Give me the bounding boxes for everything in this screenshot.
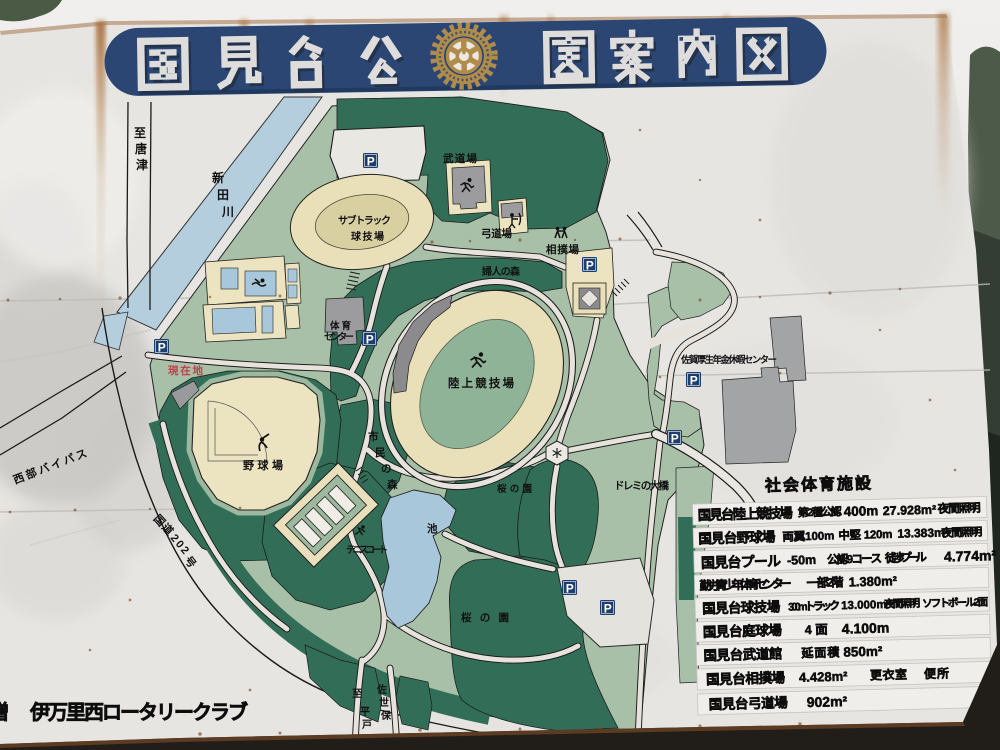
svg-text:公認9コース: 公認9コース — [827, 551, 882, 566]
svg-text:P: P — [671, 431, 679, 445]
svg-text:P: P — [690, 373, 698, 387]
svg-text:婦人の森: 婦人の森 — [481, 265, 521, 278]
svg-text:唐: 唐 — [135, 141, 147, 156]
svg-text:の: の — [381, 463, 392, 475]
svg-text:新: 新 — [212, 170, 224, 185]
svg-text:勤労青少年体育センター: 勤労青少年体育センター — [699, 576, 791, 593]
svg-text:4.428m²: 4.428m² — [799, 669, 848, 685]
svg-text:P: P — [586, 258, 594, 272]
svg-text:戸: 戸 — [362, 719, 372, 731]
svg-text:野球場: 野球場 — [243, 458, 283, 472]
svg-text:テニスコート: テニスコート — [346, 545, 388, 556]
svg-text:P: P — [158, 340, 166, 354]
svg-text:相撲場: 相撲場 — [546, 243, 580, 256]
svg-text:市: 市 — [368, 430, 379, 443]
svg-text:陸上競技場: 陸上競技場 — [448, 376, 515, 390]
svg-text:P: P — [366, 332, 374, 346]
svg-text:体育: 体育 — [330, 320, 351, 332]
svg-text:至: 至 — [134, 126, 146, 140]
svg-text:便所: 便所 — [924, 665, 949, 681]
svg-text:池: 池 — [427, 522, 438, 535]
svg-text:森: 森 — [386, 478, 398, 491]
svg-text:1.380m²: 1.380m² — [848, 573, 897, 589]
svg-text:武道場: 武道場 — [443, 152, 478, 165]
svg-text:902m²: 902m² — [807, 693, 848, 710]
svg-text:田: 田 — [217, 188, 229, 202]
svg-text:センター: センター — [324, 331, 354, 343]
svg-text:両翼100m: 両翼100m — [782, 529, 834, 543]
svg-text:P: P — [604, 601, 612, 615]
svg-text:桜の園: 桜の園 — [461, 611, 513, 624]
svg-text:伊万里西ロータリークラブ: 伊万里西ロータリークラブ — [29, 700, 248, 724]
svg-text:国見台相撲場: 国見台相撲場 — [706, 669, 786, 687]
svg-text:夜間照明: 夜間照明 — [937, 501, 981, 516]
svg-text:球技場: 球技場 — [351, 230, 384, 243]
svg-text:4.100m: 4.100m — [842, 619, 890, 636]
svg-text:国見台武道館: 国見台武道館 — [703, 645, 782, 663]
svg-text:一部2階: 一部2階 — [806, 574, 843, 590]
svg-text:国見台庭球場: 国見台庭球場 — [703, 622, 783, 640]
svg-text:300mトラック: 300mトラック — [788, 599, 840, 613]
svg-text:更衣室: 更衣室 — [870, 667, 907, 683]
svg-text:国見台プール: 国見台プール — [701, 553, 781, 571]
svg-text:中堅 120m: 中堅 120m — [838, 527, 892, 542]
svg-text:佐: 佐 — [376, 683, 387, 696]
svg-text:4.774m²: 4.774m² — [944, 547, 997, 564]
svg-text:-50m: -50m — [787, 553, 817, 568]
svg-text:国見台陸上競技場: 国見台陸上競技場 — [698, 504, 794, 522]
svg-text:4面: 4面 — [805, 623, 829, 638]
svg-text:P: P — [367, 154, 375, 168]
svg-text:27.928m²: 27.928m² — [883, 503, 937, 518]
svg-text:サブトラック: サブトラック — [338, 214, 391, 227]
svg-text:ソフトボール2面: ソフトボール2面 — [922, 595, 989, 610]
svg-text:民: 民 — [375, 447, 386, 459]
svg-text:国見台弓道場: 国見台弓道場 — [709, 694, 789, 712]
svg-text:弓道場: 弓道場 — [481, 227, 513, 240]
svg-text:保: 保 — [380, 709, 392, 722]
svg-text:夜間照明: 夜間照明 — [940, 525, 982, 540]
svg-text:桜の園: 桜の園 — [497, 483, 532, 495]
svg-text:850m²: 850m² — [843, 644, 883, 660]
svg-text:津: 津 — [136, 157, 148, 172]
svg-text:世: 世 — [379, 696, 389, 709]
svg-text:夜間照明: 夜間照明 — [883, 597, 920, 611]
svg-text:国見台野球場: 国見台野球場 — [698, 528, 776, 546]
svg-text:国見台球技場: 国見台球技場 — [702, 598, 781, 616]
svg-text:佐賀厚生年金休暇センター: 佐賀厚生年金休暇センター — [680, 354, 777, 366]
svg-text:延面積: 延面積 — [800, 644, 840, 660]
svg-text:川: 川 — [221, 205, 234, 219]
svg-text:贈: 贈 — [0, 700, 9, 724]
svg-text:第2種公認: 第2種公認 — [798, 504, 842, 519]
svg-text:徒渉プール: 徒渉プール — [884, 550, 928, 565]
svg-text:平: 平 — [360, 706, 370, 718]
svg-text:P: P — [566, 581, 574, 595]
svg-text:現在地: 現在地 — [168, 364, 204, 377]
svg-text:至: 至 — [352, 688, 362, 700]
svg-text:ドレミの大橋: ドレミの大橋 — [614, 479, 670, 492]
svg-text:400m: 400m — [844, 503, 879, 519]
